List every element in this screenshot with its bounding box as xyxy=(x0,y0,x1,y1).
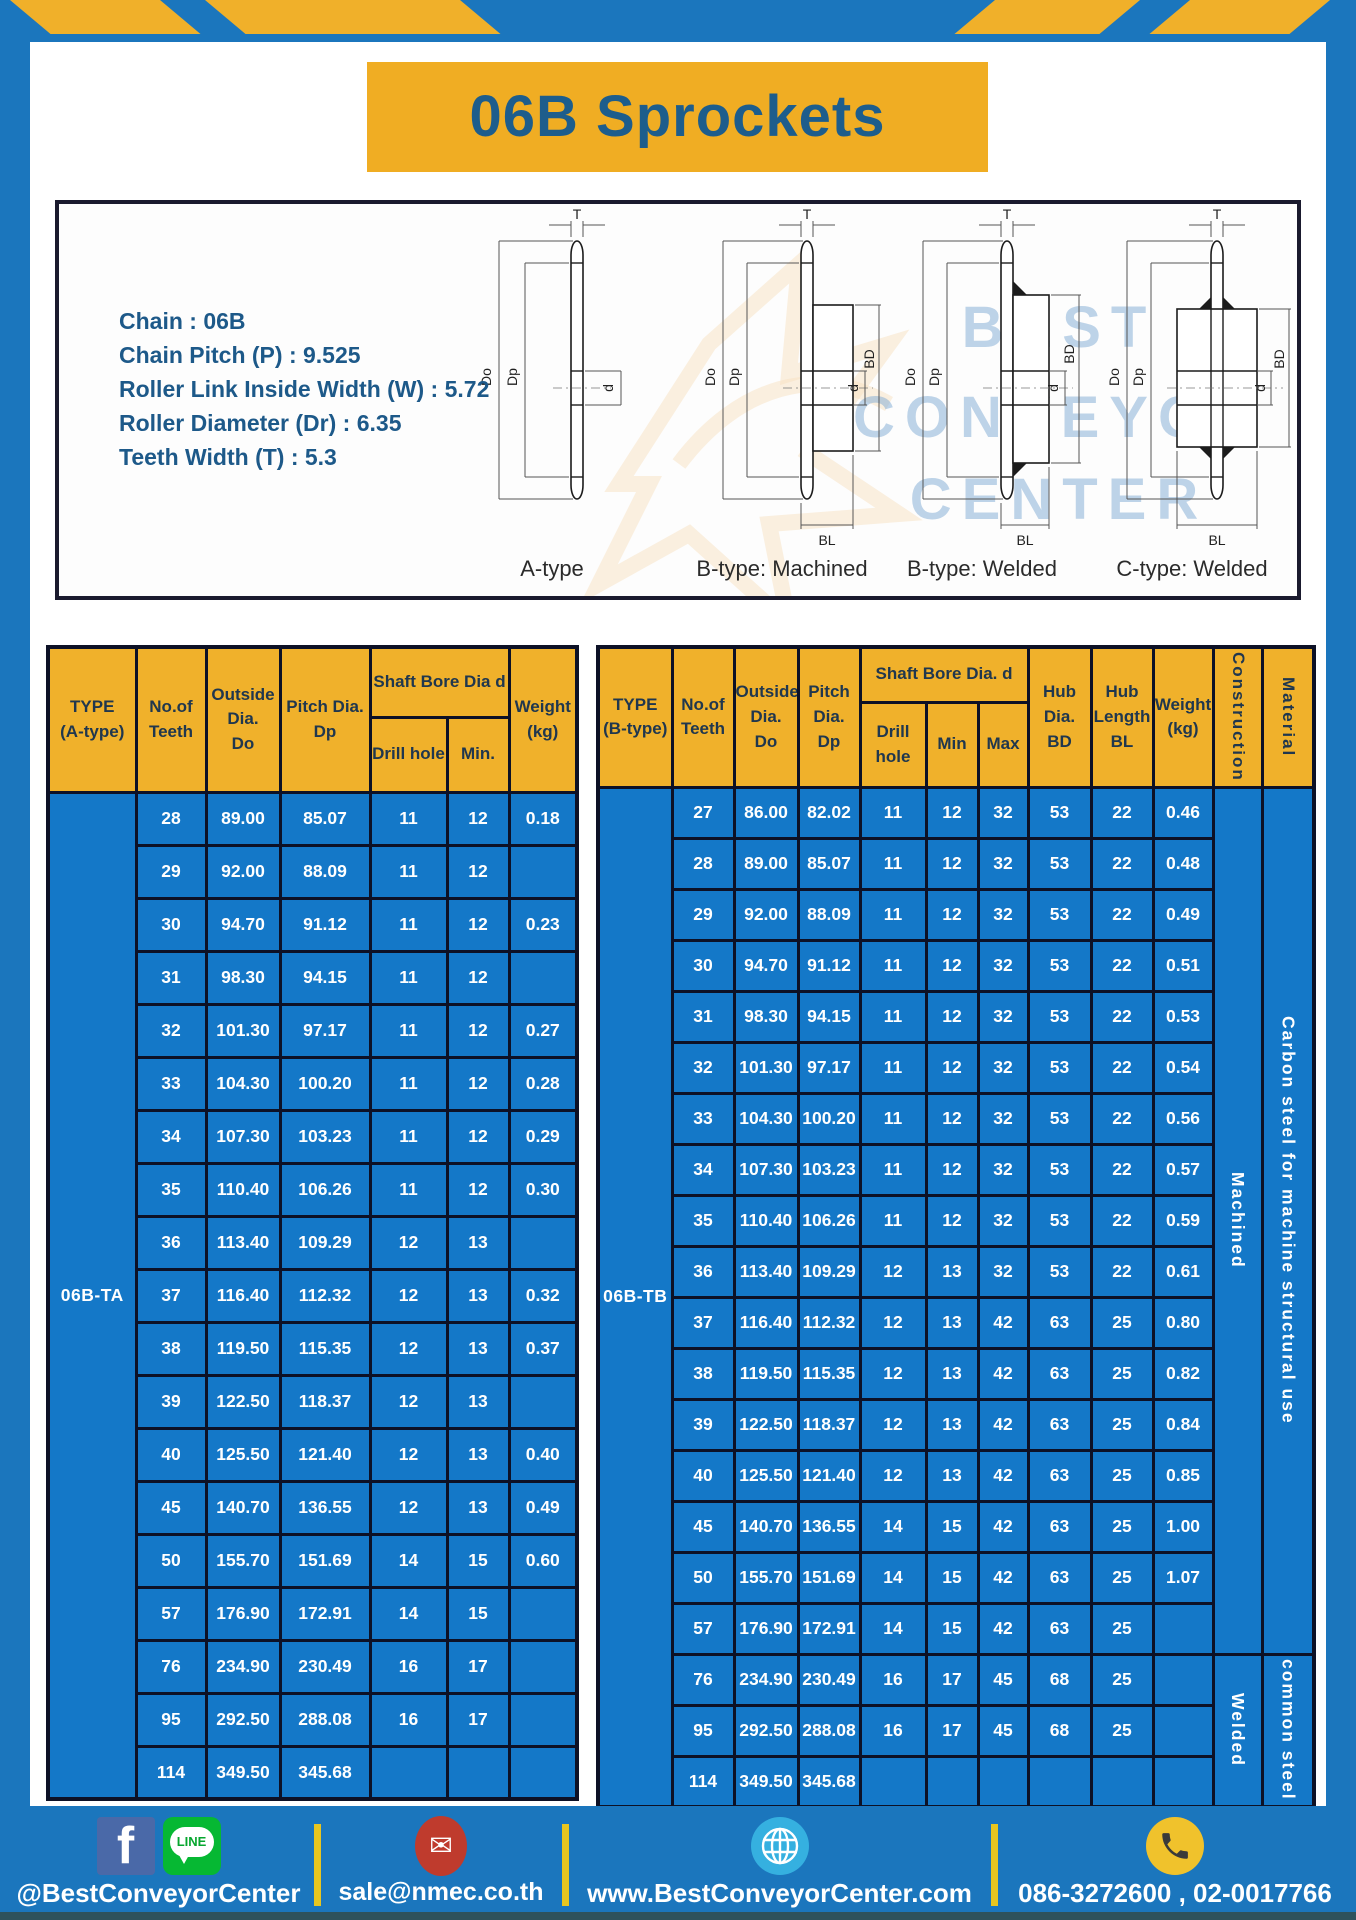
spec-line: Roller Diameter (Dr) : 6.35 xyxy=(119,406,559,440)
table-row: 37116.40112.3212134263250.80 xyxy=(598,1297,1314,1348)
table-b-cell: 110.40 xyxy=(734,1195,798,1246)
table-a-cell: 13 xyxy=(447,1216,509,1269)
table-b-header-outside: Outside Dia. Do xyxy=(734,647,798,787)
table-a-cell: 13 xyxy=(447,1269,509,1322)
line-badge: LINE xyxy=(170,1827,214,1857)
svg-text:T: T xyxy=(1003,209,1012,222)
table-b-cell: 13 xyxy=(926,1399,978,1450)
table-a-cell: 91.12 xyxy=(280,898,370,951)
table-a-cell xyxy=(509,1693,577,1746)
table-b-cell: 136.55 xyxy=(798,1501,860,1552)
table-a-cell: 0.27 xyxy=(509,1004,577,1057)
table-b-cell: 155.70 xyxy=(734,1552,798,1603)
table-b-cell: 25 xyxy=(1091,1348,1153,1399)
table-b-cell: 14 xyxy=(860,1552,926,1603)
table-b-cell: 53 xyxy=(1028,1195,1091,1246)
table-a-cell: 151.69 xyxy=(280,1534,370,1587)
spec-line: Chain Pitch (P) : 9.525 xyxy=(119,338,559,372)
footer-website-section: www.BestConveyorCenter.com xyxy=(565,1806,994,1914)
table-a-header-outside: Outside Dia. Do xyxy=(206,647,280,792)
svg-text:BL: BL xyxy=(1016,532,1033,548)
table-b-cell: 95 xyxy=(672,1705,734,1756)
table-a-cell: 12 xyxy=(370,1216,447,1269)
table-b-cell: 22 xyxy=(1091,1144,1153,1195)
table-b-cell: 14 xyxy=(860,1603,926,1654)
table-b-cell xyxy=(1091,1756,1153,1807)
table-b-cell: 125.50 xyxy=(734,1450,798,1501)
table-a-cell: 32 xyxy=(136,1004,206,1057)
table-b-header-material: Material xyxy=(1262,647,1314,787)
table-a-cell: 100.20 xyxy=(280,1057,370,1110)
svg-text:d: d xyxy=(1252,384,1268,392)
table-a-cell: 36 xyxy=(136,1216,206,1269)
stripe-decoration xyxy=(10,0,201,34)
svg-text:Dp: Dp xyxy=(926,368,942,386)
table-b-cell: 288.08 xyxy=(798,1705,860,1756)
table-a-header-type: TYPE (A-type) xyxy=(48,647,136,792)
table-a-cell xyxy=(509,1746,577,1799)
page-title: 06B Sprockets xyxy=(367,62,988,172)
table-b-cell: 27 xyxy=(672,787,734,838)
table-b-cell: 12 xyxy=(926,1195,978,1246)
table-b-cell: 13 xyxy=(926,1450,978,1501)
stripe-decoration xyxy=(1149,0,1330,34)
table-a-cell: 40 xyxy=(136,1428,206,1481)
table-a-cell: 114 xyxy=(136,1746,206,1799)
table-b-cell: 25 xyxy=(1091,1399,1153,1450)
table-b-cell: 63 xyxy=(1028,1552,1091,1603)
table-b-cell: 22 xyxy=(1091,838,1153,889)
svg-text:BL: BL xyxy=(818,532,835,548)
table-a-cell: 106.26 xyxy=(280,1163,370,1216)
table-b-cell: 63 xyxy=(1028,1501,1091,1552)
table-b-cell: 50 xyxy=(672,1552,734,1603)
table-b-cell xyxy=(1153,1654,1213,1705)
table-a-cell: 118.37 xyxy=(280,1375,370,1428)
mail-icon[interactable]: ✉ xyxy=(415,1816,467,1876)
table-a-cell: 94.15 xyxy=(280,951,370,1004)
table-a-cell: 14 xyxy=(370,1534,447,1587)
table-a-cell: 12 xyxy=(447,1004,509,1057)
table-b-cell: 53 xyxy=(1028,787,1091,838)
table-b-cell: 112.32 xyxy=(798,1297,860,1348)
table-b-cell: 63 xyxy=(1028,1603,1091,1654)
table-b-cell: 15 xyxy=(926,1552,978,1603)
table-b-cell: 151.69 xyxy=(798,1552,860,1603)
top-band xyxy=(0,0,1356,42)
a-type-label: A-type xyxy=(447,556,657,582)
table-a-cell: 0.32 xyxy=(509,1269,577,1322)
table-b-cell: 97.17 xyxy=(798,1042,860,1093)
table-b-cell: 11 xyxy=(860,889,926,940)
table-b-cell: 0.85 xyxy=(1153,1450,1213,1501)
table-a-cell xyxy=(447,1746,509,1799)
table-b-body: 06B-TB2786.0082.0211123253220.46Machined… xyxy=(598,787,1314,1807)
table-b-cell: 22 xyxy=(1091,889,1153,940)
table-b-cell: 22 xyxy=(1091,1093,1153,1144)
table-a-cell: 13 xyxy=(447,1481,509,1534)
facebook-icon[interactable]: f xyxy=(97,1817,155,1875)
table-b-cell: 63 xyxy=(1028,1348,1091,1399)
table-a-cell: 349.50 xyxy=(206,1746,280,1799)
table-a-header-shaft-bore: Shaft Bore Dia d xyxy=(370,647,509,717)
table-a-cell: 0.18 xyxy=(509,792,577,845)
table-a-cell xyxy=(509,1375,577,1428)
table-b-cell: 0.80 xyxy=(1153,1297,1213,1348)
table-a-header-pitch: Pitch Dia. Dp xyxy=(280,647,370,792)
table-b-cell: 12 xyxy=(860,1399,926,1450)
svg-text:T: T xyxy=(1213,209,1222,222)
table-a-cell: 50 xyxy=(136,1534,206,1587)
table-b-cell: 172.91 xyxy=(798,1603,860,1654)
table-b-cell: 32 xyxy=(672,1042,734,1093)
table-b-cell: 118.37 xyxy=(798,1399,860,1450)
table-b-cell: 0.54 xyxy=(1153,1042,1213,1093)
table-a-cell: 292.50 xyxy=(206,1693,280,1746)
table-b-cell: 85.07 xyxy=(798,838,860,889)
table-b-cell: 12 xyxy=(926,991,978,1042)
table-b-cell: 115.35 xyxy=(798,1348,860,1399)
table-b-cell: 37 xyxy=(672,1297,734,1348)
svg-text:Do: Do xyxy=(902,368,918,386)
table-a-cell: 0.60 xyxy=(509,1534,577,1587)
table-a-header-teeth: No.of Teeth xyxy=(136,647,206,792)
table-b-cell: 63 xyxy=(1028,1399,1091,1450)
table-row: 57176.90172.911415426325 xyxy=(598,1603,1314,1654)
table-b-cell: 30 xyxy=(672,940,734,991)
footer-email[interactable]: sale@nmec.co.th xyxy=(317,1878,565,1907)
table-b-cell: 11 xyxy=(860,991,926,1042)
table-b-cell: 12 xyxy=(926,1093,978,1144)
table-b-cell: 11 xyxy=(860,1144,926,1195)
table-b-cell: 114 xyxy=(672,1756,734,1807)
table-b-cell: 25 xyxy=(1091,1501,1153,1552)
table-a-cell: 14 xyxy=(370,1587,447,1640)
table-a-cell: 35 xyxy=(136,1163,206,1216)
stripe-decoration xyxy=(205,0,501,34)
table-b-cell: 101.30 xyxy=(734,1042,798,1093)
table-a-cell: 29 xyxy=(136,845,206,898)
table-b-cell: 42 xyxy=(978,1297,1028,1348)
table-b-cell: 234.90 xyxy=(734,1654,798,1705)
table-b-cell: 1.00 xyxy=(1153,1501,1213,1552)
table-b-cell: 33 xyxy=(672,1093,734,1144)
table-row: 33104.30100.2011123253220.56 xyxy=(598,1093,1314,1144)
table-b-cell: 11 xyxy=(860,1093,926,1144)
table-a-cell: 95 xyxy=(136,1693,206,1746)
table-b-cell: 12 xyxy=(860,1450,926,1501)
table-a-cell: 13 xyxy=(447,1428,509,1481)
table-a-cell: 121.40 xyxy=(280,1428,370,1481)
table-b-cell: 16 xyxy=(860,1654,926,1705)
table-b-cell: 94.70 xyxy=(734,940,798,991)
table-a-type-cell: 06B-TA xyxy=(48,792,136,1799)
svg-text:BL: BL xyxy=(1208,532,1225,548)
table-a-cell: 122.50 xyxy=(206,1375,280,1428)
table-a-cell: 31 xyxy=(136,951,206,1004)
table-a-cell: 12 xyxy=(447,1163,509,1216)
table-row: 114349.50345.68 xyxy=(598,1756,1314,1807)
table-b-cell: 0.56 xyxy=(1153,1093,1213,1144)
table-b-cell: 42 xyxy=(978,1603,1028,1654)
table-a-cell: 97.17 xyxy=(280,1004,370,1057)
table-a-cell: 12 xyxy=(447,792,509,845)
table-a-cell: 57 xyxy=(136,1587,206,1640)
footer-bar: f LINE @BestConveyorCenter ✉ sale@nmec.c… xyxy=(0,1806,1356,1914)
svg-text:d: d xyxy=(845,384,861,392)
table-b-cell xyxy=(1028,1756,1091,1807)
table-a-cell: 11 xyxy=(370,1110,447,1163)
table-b-cell: 32 xyxy=(978,838,1028,889)
table-b-cell: 0.49 xyxy=(1153,889,1213,940)
footer-divider xyxy=(562,1824,569,1906)
table-b-cell: 53 xyxy=(1028,1144,1091,1195)
table-b-cell: 31 xyxy=(672,991,734,1042)
table-b-cell: 57 xyxy=(672,1603,734,1654)
b-type-machined-label: B-type: Machined xyxy=(677,556,887,582)
table-a-cell: 11 xyxy=(370,1004,447,1057)
table-a-cell xyxy=(509,951,577,1004)
table-b-cell: 11 xyxy=(860,1195,926,1246)
table-a-cell: 116.40 xyxy=(206,1269,280,1322)
table-a-cell: 115.35 xyxy=(280,1322,370,1375)
table-b-cell: 13 xyxy=(926,1297,978,1348)
table-a-cell: 11 xyxy=(370,1163,447,1216)
table-a-cell: 12 xyxy=(370,1322,447,1375)
table-a-cell xyxy=(509,1587,577,1640)
table-b-cell: 11 xyxy=(860,940,926,991)
svg-text:BD: BD xyxy=(1271,349,1287,368)
table-b-header-drill: Drill hole xyxy=(860,702,926,787)
table-a-cell: 11 xyxy=(370,898,447,951)
table-b-cell: 12 xyxy=(926,1144,978,1195)
table-b-cell: 32 xyxy=(978,889,1028,940)
svg-text:BD: BD xyxy=(861,349,877,368)
table-b-cell: 106.26 xyxy=(798,1195,860,1246)
table-a-cell: 125.50 xyxy=(206,1428,280,1481)
footer-email-section: ✉ sale@nmec.co.th xyxy=(317,1806,565,1914)
table-a-cell xyxy=(509,845,577,898)
table-row: 40125.50121.4012134263250.85 xyxy=(598,1450,1314,1501)
table-b-cell: 116.40 xyxy=(734,1297,798,1348)
table-b-cell: 39 xyxy=(672,1399,734,1450)
footer-divider xyxy=(991,1824,998,1906)
table-b-cell: 0.59 xyxy=(1153,1195,1213,1246)
table-b-cell: 0.51 xyxy=(1153,940,1213,991)
table-b-cell: 32 xyxy=(978,1042,1028,1093)
material-cell: common steel xyxy=(1262,1654,1314,1807)
table-a-cell: 98.30 xyxy=(206,951,280,1004)
table-a-cell xyxy=(509,1216,577,1269)
table-b-cell: 0.53 xyxy=(1153,991,1213,1042)
b-type-welded-diagram: T Do Dp d BD BL xyxy=(877,209,1087,554)
table-b-cell: 28 xyxy=(672,838,734,889)
table-b-cell: 25 xyxy=(1091,1603,1153,1654)
phone-icon[interactable] xyxy=(1146,1817,1204,1875)
table-b-header-hub-dia: Hub Dia. BD xyxy=(1028,647,1091,787)
table-row: 3198.3094.1511123253220.53 xyxy=(598,991,1314,1042)
table-a-cell: 11 xyxy=(370,845,447,898)
table-b-cell: 32 xyxy=(978,991,1028,1042)
svg-text:Do: Do xyxy=(1106,368,1122,386)
table-a-cell: 119.50 xyxy=(206,1322,280,1375)
table-b-cell: 12 xyxy=(926,787,978,838)
table-b-cell: 32 xyxy=(978,940,1028,991)
table-b-cell: 63 xyxy=(1028,1450,1091,1501)
table-a-cell: 0.40 xyxy=(509,1428,577,1481)
table-b-cell: 38 xyxy=(672,1348,734,1399)
table-a-cell: 0.28 xyxy=(509,1057,577,1110)
construction-cell: Machined xyxy=(1213,787,1262,1654)
table-b-cell xyxy=(1153,1603,1213,1654)
table-a-cell xyxy=(370,1746,447,1799)
table-a-body: 06B-TA2889.0085.0711120.182992.0088.0911… xyxy=(48,792,577,1799)
table-a-cell: 13 xyxy=(447,1322,509,1375)
table-b-cell xyxy=(1153,1756,1213,1807)
table-row: 06B-TB2786.0082.0211123253220.46Machined… xyxy=(598,787,1314,838)
table-b-cell: 92.00 xyxy=(734,889,798,940)
table-b-cell: 88.09 xyxy=(798,889,860,940)
table-b-cell: 345.68 xyxy=(798,1756,860,1807)
table-b-cell: 103.23 xyxy=(798,1144,860,1195)
table-b-cell: 82.02 xyxy=(798,787,860,838)
table-a-cell: 38 xyxy=(136,1322,206,1375)
table-a-cell: 16 xyxy=(370,1640,447,1693)
table-a-cell: 12 xyxy=(447,1057,509,1110)
table-a-cell: 28 xyxy=(136,792,206,845)
table-b-cell: 104.30 xyxy=(734,1093,798,1144)
line-bubble-tail xyxy=(179,1855,189,1864)
table-a-header-drill: Drill hole xyxy=(370,717,447,792)
table-b-header-min: Min xyxy=(926,702,978,787)
table-a: TYPE (A-type) No.of Teeth Outside Dia. D… xyxy=(46,645,579,1801)
table-b-cell: 0.82 xyxy=(1153,1348,1213,1399)
table-b-cell: 32 xyxy=(978,1093,1028,1144)
table-a-cell: 76 xyxy=(136,1640,206,1693)
b-type-machined-diagram: T Do Dp d BD BL xyxy=(677,209,887,554)
table-a-cell: 101.30 xyxy=(206,1004,280,1057)
table-b-cell: 122.50 xyxy=(734,1399,798,1450)
table-b-cell: 17 xyxy=(926,1654,978,1705)
table-b-cell: 45 xyxy=(672,1501,734,1552)
table-b-cell: 86.00 xyxy=(734,787,798,838)
table-a-cell: 12 xyxy=(370,1481,447,1534)
table-b-cell: 22 xyxy=(1091,1195,1153,1246)
table-a-cell: 103.23 xyxy=(280,1110,370,1163)
table-a-cell: 11 xyxy=(370,951,447,1004)
svg-text:BD: BD xyxy=(1061,344,1077,363)
table-b-cell: 32 xyxy=(978,787,1028,838)
table-b-cell: 121.40 xyxy=(798,1450,860,1501)
table-row: 36113.40109.2912133253220.61 xyxy=(598,1246,1314,1297)
table-b-cell: 89.00 xyxy=(734,838,798,889)
table-b-cell: 109.29 xyxy=(798,1246,860,1297)
table-a-cell: 88.09 xyxy=(280,845,370,898)
table-b-cell: 32 xyxy=(978,1195,1028,1246)
table-b-cell: 17 xyxy=(926,1705,978,1756)
table-b-cell: 230.49 xyxy=(798,1654,860,1705)
table-a-cell: 172.91 xyxy=(280,1587,370,1640)
table-b-cell: 36 xyxy=(672,1246,734,1297)
table-b-cell: 91.12 xyxy=(798,940,860,991)
table-a-cell: 107.30 xyxy=(206,1110,280,1163)
table-b-cell: 53 xyxy=(1028,1093,1091,1144)
table-b-cell: 53 xyxy=(1028,1246,1091,1297)
table-a-cell: 39 xyxy=(136,1375,206,1428)
table-row: 95292.50288.081617456825 xyxy=(598,1705,1314,1756)
table-b-header-shaft-bore: Shaft Bore Dia. d xyxy=(860,647,1028,702)
table-a-cell: 345.68 xyxy=(280,1746,370,1799)
table-row: 2992.0088.0911123253220.49 xyxy=(598,889,1314,940)
table-b-cell: 42 xyxy=(978,1348,1028,1399)
c-type-welded-label: C-type: Welded xyxy=(1087,556,1297,582)
table-a-cell: 45 xyxy=(136,1481,206,1534)
table-b-cell: 22 xyxy=(1091,787,1153,838)
footer-phone-section: 086-3272600 , 02-0017766 xyxy=(994,1806,1356,1914)
c-type-welded-diagram: T Do Dp d BD BL xyxy=(1087,209,1297,554)
footer-phone-numbers[interactable]: 086-3272600 , 02-0017766 xyxy=(994,1878,1356,1909)
table-b-cell: 107.30 xyxy=(734,1144,798,1195)
footer-social-handle[interactable]: @BestConveyorCenter xyxy=(0,1878,317,1909)
table-a-cell: 37 xyxy=(136,1269,206,1322)
table-b-cell xyxy=(1153,1705,1213,1756)
b-type-welded-label: B-type: Welded xyxy=(877,556,1087,582)
table-a-cell: 15 xyxy=(447,1534,509,1587)
table-b-cell: 349.50 xyxy=(734,1756,798,1807)
svg-text:T: T xyxy=(803,209,812,222)
table-row: 38119.50115.3512134263250.82 xyxy=(598,1348,1314,1399)
table-b-cell: 12 xyxy=(926,838,978,889)
table-a-cell: 288.08 xyxy=(280,1693,370,1746)
table-b-cell: 15 xyxy=(926,1501,978,1552)
table-b-cell: 94.15 xyxy=(798,991,860,1042)
table-b-cell: 12 xyxy=(860,1246,926,1297)
construction-cell: Welded xyxy=(1213,1654,1262,1807)
table-row: 06B-TA2889.0085.0711120.18 xyxy=(48,792,577,845)
line-icon[interactable]: LINE xyxy=(163,1817,221,1875)
table-b-cell: 119.50 xyxy=(734,1348,798,1399)
table-a-cell: 113.40 xyxy=(206,1216,280,1269)
table-b-cell: 22 xyxy=(1091,940,1153,991)
table-a-cell: 155.70 xyxy=(206,1534,280,1587)
globe-icon[interactable] xyxy=(751,1817,809,1875)
table-b-cell: 12 xyxy=(926,1042,978,1093)
table-a-cell: 140.70 xyxy=(206,1481,280,1534)
table-b-cell: 68 xyxy=(1028,1705,1091,1756)
table-a-cell: 109.29 xyxy=(280,1216,370,1269)
table-b-cell: 0.57 xyxy=(1153,1144,1213,1195)
table-a-cell: 33 xyxy=(136,1057,206,1110)
svg-text:d: d xyxy=(1045,384,1061,392)
table-b-cell: 140.70 xyxy=(734,1501,798,1552)
table-b-cell: 0.46 xyxy=(1153,787,1213,838)
table-a-cell: 12 xyxy=(370,1269,447,1322)
table-b-cell: 0.84 xyxy=(1153,1399,1213,1450)
svg-text:Dp: Dp xyxy=(1130,368,1146,386)
svg-text:d: d xyxy=(600,384,616,392)
table-b-cell: 1.07 xyxy=(1153,1552,1213,1603)
table-a-cell: 110.40 xyxy=(206,1163,280,1216)
svg-text:Dp: Dp xyxy=(726,368,742,386)
footer-website[interactable]: www.BestConveyorCenter.com xyxy=(565,1878,994,1909)
table-b-cell: 32 xyxy=(978,1144,1028,1195)
chain-spec-block: Chain : 06B Chain Pitch (P) : 9.525 Roll… xyxy=(119,304,559,474)
table-b-cell: 53 xyxy=(1028,838,1091,889)
page-title-box: 06B Sprockets xyxy=(367,62,988,172)
table-a-cell: 15 xyxy=(447,1587,509,1640)
table-b-cell: 292.50 xyxy=(734,1705,798,1756)
table-a-header-weight: Weight (kg) xyxy=(509,647,577,792)
